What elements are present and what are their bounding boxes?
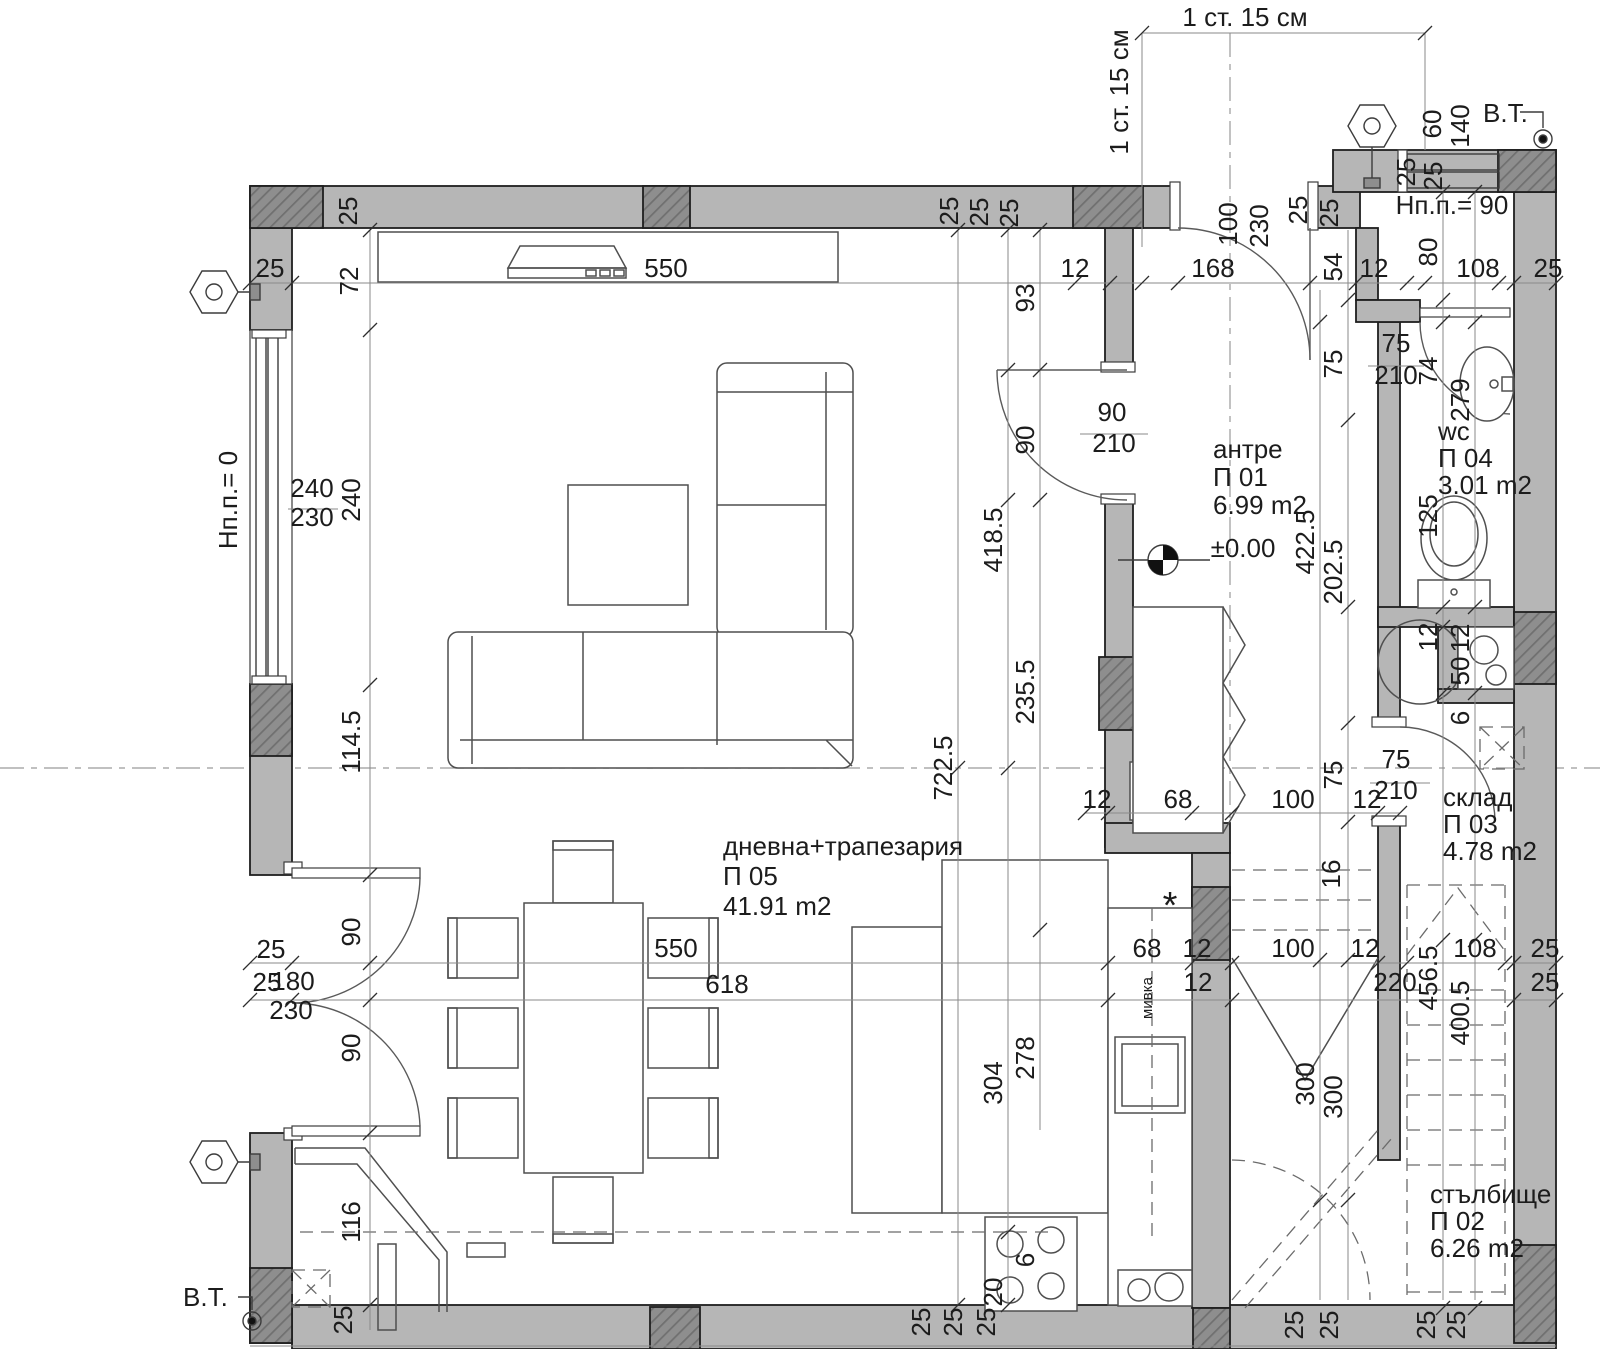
dim-label: 235.5	[1010, 659, 1040, 724]
annotation-label: Нп.п.= 0	[213, 451, 243, 549]
dim-label: 418.5	[978, 507, 1008, 572]
dim-label: 68	[1133, 933, 1162, 963]
dim-label: 25	[1314, 1311, 1344, 1340]
dim-label: 72	[334, 267, 364, 296]
room-code-living: П 05	[723, 861, 778, 891]
dim-label: 74	[1413, 357, 1443, 386]
dim-label: 75	[1382, 744, 1411, 774]
dim-label: 304	[978, 1061, 1008, 1104]
dim-label: 202.5	[1318, 539, 1348, 604]
dim-label: 25	[1314, 199, 1344, 228]
dim-label: 230	[290, 502, 333, 532]
dim-label: 100	[1271, 784, 1314, 814]
room-name-storage: склад	[1443, 782, 1512, 812]
dim-label: 12	[1360, 253, 1389, 283]
dim-label: 25	[328, 1306, 358, 1335]
dim-label: 16	[1316, 860, 1346, 889]
dim-label: 278	[1010, 1036, 1040, 1079]
room-name-living: дневна+трапезария	[723, 831, 963, 861]
dim-label: 25	[1531, 933, 1560, 963]
floor-plan-canvas: антре П 01 6.99 m2 стълбище П 02 6.26 m2…	[0, 0, 1600, 1349]
dim-label: 12	[1351, 933, 1380, 963]
dim-label: 54	[1318, 253, 1348, 282]
dim-label: 210	[1092, 428, 1135, 458]
dining-table	[524, 903, 643, 1173]
dim-label: 25	[994, 199, 1024, 228]
dim-label: 168	[1191, 253, 1234, 283]
dim-label: 50	[1445, 657, 1475, 686]
room-code-storage: П 03	[1443, 809, 1498, 839]
dim-label: 20	[978, 1278, 1008, 1307]
dim-label: 12	[1183, 933, 1212, 963]
dim-label: 220	[1373, 967, 1416, 997]
dim-label: 108	[1453, 933, 1496, 963]
annotation-label: ±0.00	[1211, 533, 1276, 563]
room-area-storage: 4.78 m2	[1443, 836, 1537, 866]
dim-label: 25	[964, 198, 994, 227]
dim-label: 25	[1534, 253, 1563, 283]
shaft-box-left	[292, 1270, 330, 1307]
dim-label: 400.5	[1445, 980, 1475, 1045]
dim-label: 25	[906, 1308, 936, 1337]
dim-label: 68	[1164, 784, 1193, 814]
room-name-hall: антре	[1213, 434, 1283, 464]
dim-label: 25	[1441, 1311, 1471, 1340]
annotation-label: В.Т.	[1483, 98, 1528, 128]
coffee-table	[568, 485, 688, 605]
room-area-living: 41.91 m2	[723, 891, 831, 921]
annotation-label: мивка	[1139, 976, 1156, 1019]
dim-label: 75	[1318, 350, 1348, 379]
dim-label: 108	[1456, 253, 1499, 283]
dim-label: 100	[1213, 202, 1243, 245]
dim-label: 12	[1061, 253, 1090, 283]
room-name-stairs: стълбище	[1430, 1179, 1551, 1209]
dim-label: 80	[1413, 238, 1443, 267]
dim-label: 6	[1010, 1253, 1040, 1267]
dim-label: 12	[1184, 967, 1213, 997]
dim-label: 90	[336, 1034, 366, 1063]
annotation-label: *	[1163, 885, 1178, 927]
room-code-hall: П 01	[1213, 462, 1268, 492]
dim-label: 210	[1374, 360, 1417, 390]
dim-label: 25	[1531, 967, 1560, 997]
floor-plan-drawing: антре П 01 6.99 m2 стълбище П 02 6.26 m2…	[0, 0, 1600, 1349]
dim-label: 25	[938, 1308, 968, 1337]
dim-label: 25	[1279, 1311, 1309, 1340]
dim-label: 60	[1417, 110, 1447, 139]
annotation-label: 1 ст. 15 см	[1104, 29, 1134, 154]
dim-label: 25	[971, 1308, 1001, 1337]
dim-label: 180	[271, 966, 314, 996]
dim-label: 93	[1010, 284, 1040, 313]
dim-label: 12	[1083, 784, 1112, 814]
dim-label: 90	[1098, 397, 1127, 427]
dim-label: 25	[1418, 162, 1448, 191]
dim-label: 140	[1445, 104, 1475, 147]
dining-set	[448, 841, 718, 1243]
annotation-label: В.Т.	[183, 1282, 228, 1312]
room-code-stairs: П 02	[1430, 1206, 1485, 1236]
dim-label: 12	[1445, 624, 1475, 653]
dim-label: 230	[269, 995, 312, 1025]
dim-label: 25	[333, 197, 363, 226]
dim-label: 240	[336, 478, 366, 521]
dim-label: 300	[1318, 1075, 1348, 1118]
dim-label: 25	[256, 253, 285, 283]
dim-label: 230	[1244, 204, 1274, 247]
room-area-stairs: 6.26 m2	[1430, 1233, 1524, 1263]
room-code-wc: П 04	[1438, 443, 1493, 473]
wall-hall-divider-upper	[1105, 228, 1133, 370]
dim-label: 90	[336, 918, 366, 947]
dim-label: 75	[1382, 328, 1411, 358]
dim-label: 116	[336, 1201, 366, 1242]
tv-cabinet	[378, 232, 838, 282]
dim-label: 12	[1353, 784, 1382, 814]
dim-label: 25	[1411, 1311, 1441, 1340]
dim-label: 114.5	[336, 710, 366, 773]
dim-label: 100	[1271, 933, 1314, 963]
dim-label: 300	[1290, 1062, 1320, 1105]
dim-label: 722.5	[928, 735, 958, 800]
dim-label: 550	[644, 253, 687, 283]
dim-label: 12	[1413, 623, 1443, 652]
dim-label: 75	[1318, 761, 1348, 790]
dim-label: 25	[934, 197, 964, 226]
annotation-label: 1 ст. 15 см	[1182, 2, 1307, 32]
dim-label: 279	[1445, 378, 1475, 421]
dim-label: 550	[654, 933, 697, 963]
dim-label: 240	[290, 473, 333, 503]
dim-label: 90	[1010, 426, 1040, 455]
dim-label: 422.5	[1290, 509, 1320, 574]
dim-label: 25	[257, 934, 286, 964]
dim-label: 618	[705, 969, 748, 999]
dim-label: 6	[1445, 711, 1475, 725]
room-area-wc: 3.01 m2	[1438, 470, 1532, 500]
window-living-left	[250, 330, 292, 684]
annotation-label: Нп.п.= 90	[1396, 190, 1509, 220]
dim-label: 456.5	[1413, 945, 1443, 1010]
dim-label: 25	[1283, 196, 1313, 225]
dim-label: 25	[1391, 158, 1421, 187]
dim-label: 125	[1413, 494, 1443, 537]
